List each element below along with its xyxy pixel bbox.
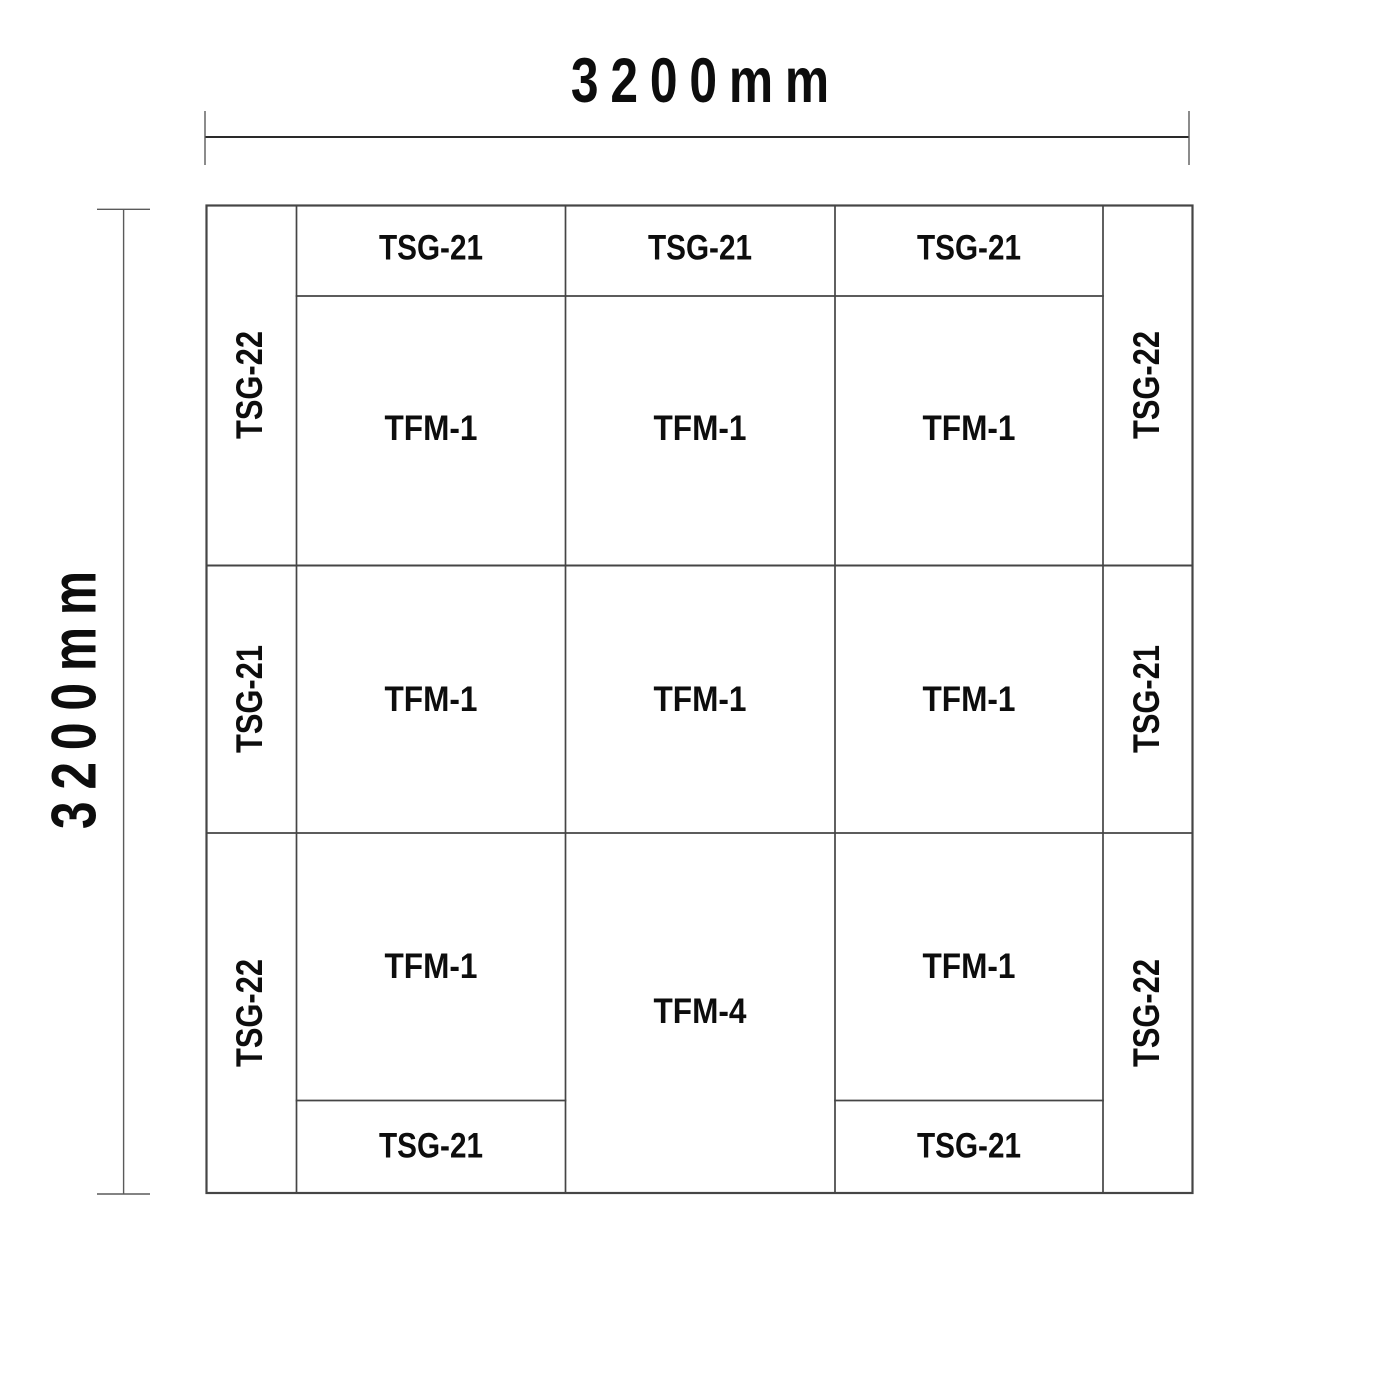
svg-text:TFM-1: TFM-1 xyxy=(385,680,478,719)
svg-text:TFM-1: TFM-1 xyxy=(654,409,747,448)
svg-text:TSG-22: TSG-22 xyxy=(1126,959,1167,1067)
svg-text:TSG-22: TSG-22 xyxy=(229,959,270,1067)
svg-text:TFM-1: TFM-1 xyxy=(923,947,1016,986)
svg-text:TSG-21: TSG-21 xyxy=(917,1127,1021,1166)
svg-text:TSG-21: TSG-21 xyxy=(648,229,752,268)
svg-text:TFM-1: TFM-1 xyxy=(923,680,1016,719)
svg-text:TFM-4: TFM-4 xyxy=(654,992,747,1031)
svg-text:TSG-21: TSG-21 xyxy=(1126,645,1167,753)
svg-text:TFM-1: TFM-1 xyxy=(385,409,478,448)
svg-text:TSG-21: TSG-21 xyxy=(379,229,483,268)
svg-text:TSG-21: TSG-21 xyxy=(917,229,1021,268)
svg-text:TFM-1: TFM-1 xyxy=(923,409,1016,448)
svg-text:TSG-22: TSG-22 xyxy=(1126,331,1167,439)
svg-text:TSG-21: TSG-21 xyxy=(229,645,270,753)
svg-text:TFM-1: TFM-1 xyxy=(654,680,747,719)
svg-text:3200mm: 3200mm xyxy=(40,571,110,829)
svg-text:TSG-22: TSG-22 xyxy=(229,331,270,439)
svg-text:TFM-1: TFM-1 xyxy=(385,947,478,986)
svg-text:3200mm: 3200mm xyxy=(571,47,829,117)
svg-text:TSG-21: TSG-21 xyxy=(379,1127,483,1166)
